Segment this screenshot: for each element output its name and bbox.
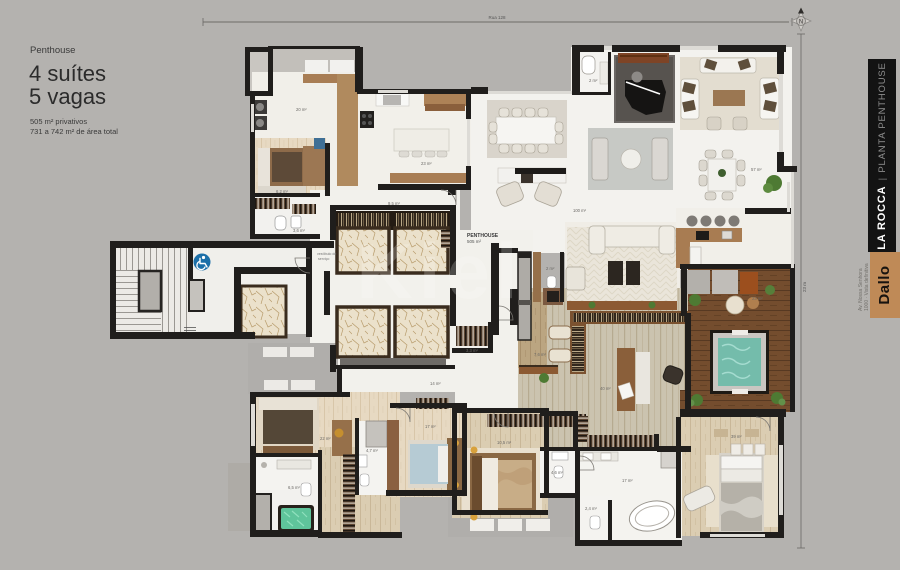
svg-text:23 m²: 23 m² <box>421 161 432 166</box>
svg-text:Rua 128: Rua 128 <box>488 15 506 20</box>
svg-text:3,3 m²: 3,3 m² <box>466 348 478 353</box>
svg-text:4 suítes: 4 suítes <box>29 61 106 86</box>
svg-text:57 m²: 57 m² <box>751 167 762 172</box>
svg-text:Kiel: Kiel <box>356 227 523 315</box>
svg-text:3,6 m²: 3,6 m² <box>293 228 305 233</box>
svg-text:6,5 m²: 6,5 m² <box>288 485 300 490</box>
svg-text:4,7 m²: 4,7 m² <box>366 448 378 453</box>
svg-text:serviço: serviço <box>318 257 329 261</box>
svg-text:17 m²: 17 m² <box>425 424 436 429</box>
svg-text:20 m²: 20 m² <box>296 107 307 112</box>
svg-text:22 m²: 22 m² <box>320 436 331 441</box>
svg-text:10,5 m²: 10,5 m² <box>497 440 512 445</box>
svg-text:505 m² privativos: 505 m² privativos <box>30 117 87 126</box>
svg-text:4,6 m²: 4,6 m² <box>551 470 563 475</box>
svg-text:23 m: 23 m <box>802 282 807 292</box>
svg-text:17 m²: 17 m² <box>622 478 633 483</box>
svg-text:23 m²: 23 m² <box>752 296 763 301</box>
svg-text:100 m²: 100 m² <box>573 208 587 213</box>
svg-text:Penthouse: Penthouse <box>30 45 75 56</box>
svg-text:2 m²: 2 m² <box>546 266 555 271</box>
svg-text:2 m²: 2 m² <box>589 78 598 83</box>
svg-text:2,4 m²: 2,4 m² <box>585 506 597 511</box>
svg-text:7,6 m²: 7,6 m² <box>534 352 546 357</box>
svg-text:5 vagas: 5 vagas <box>29 84 106 109</box>
svg-text:N: N <box>799 20 803 26</box>
svg-text:39 m²: 39 m² <box>731 434 742 439</box>
svg-text:vestíbulo de: vestíbulo de <box>317 252 336 256</box>
svg-text:6,2 m²: 6,2 m² <box>276 189 288 194</box>
svg-text:505 m²: 505 m² <box>467 239 482 244</box>
svg-text:731 a 742 m² de área total: 731 a 742 m² de área total <box>30 127 118 136</box>
svg-text:40 m²: 40 m² <box>600 386 611 391</box>
svg-text:14 m²: 14 m² <box>430 381 441 386</box>
svg-text:9,5 m²: 9,5 m² <box>388 201 400 206</box>
